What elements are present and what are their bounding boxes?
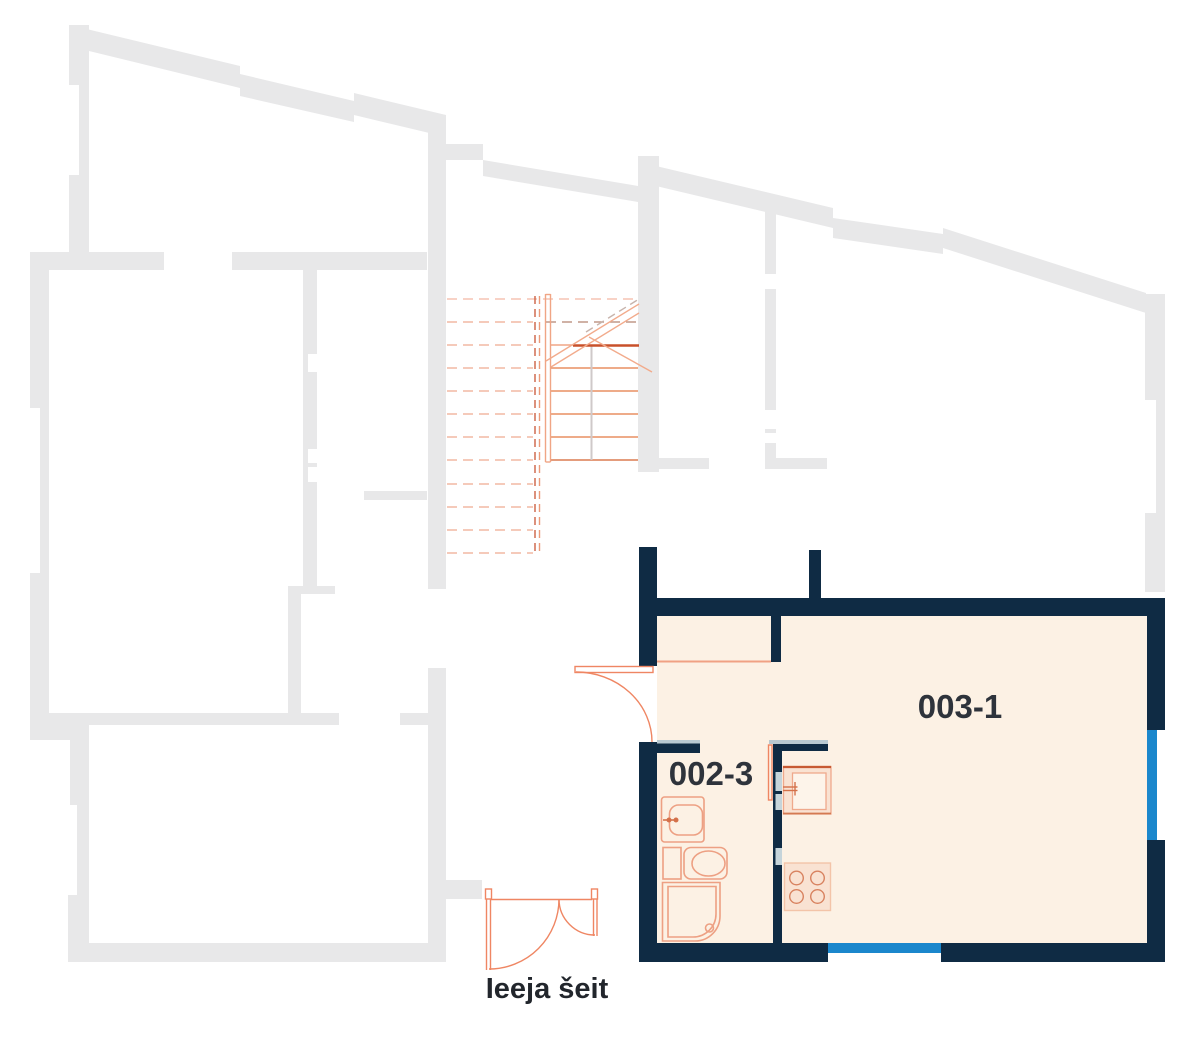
svg-text:003-1: 003-1 xyxy=(918,688,1002,725)
svg-text:Ieeja šeit: Ieeja šeit xyxy=(486,973,609,1005)
svg-text:002-3: 002-3 xyxy=(669,755,753,792)
